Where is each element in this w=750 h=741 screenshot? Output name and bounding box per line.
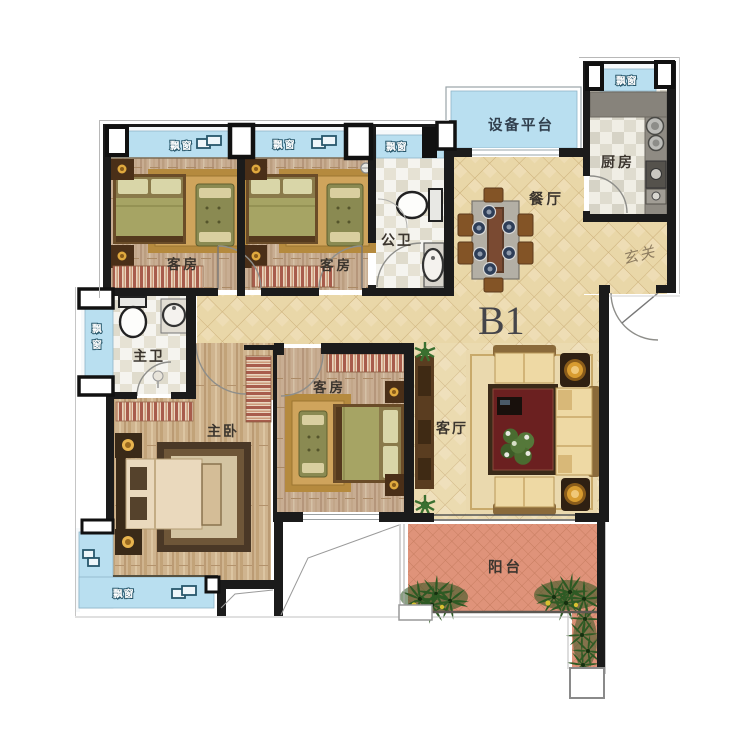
svg-text:飘窗: 飘窗 [616,74,638,87]
svg-text:厨房: 厨房 [601,154,635,170]
svg-text:飘: 飘 [92,323,102,335]
svg-text:餐厅: 餐厅 [529,190,564,208]
svg-text:客房: 客房 [312,379,346,395]
svg-text:设备平台: 设备平台 [488,116,554,134]
svg-text:客房: 客房 [319,257,353,273]
svg-text:窗: 窗 [92,338,102,351]
svg-text:飘窗: 飘窗 [170,139,194,152]
svg-text:主卫: 主卫 [133,348,165,364]
svg-text:阳台: 阳台 [488,558,523,576]
svg-text:B1: B1 [478,298,525,343]
svg-text:客房: 客房 [166,256,200,272]
svg-text:飘窗: 飘窗 [273,138,297,151]
svg-text:飘窗: 飘窗 [113,587,135,600]
svg-text:主卧: 主卧 [207,423,239,439]
svg-text:公卫: 公卫 [381,232,413,248]
svg-text:飘窗: 飘窗 [386,140,408,153]
svg-text:客厅: 客厅 [435,420,468,436]
